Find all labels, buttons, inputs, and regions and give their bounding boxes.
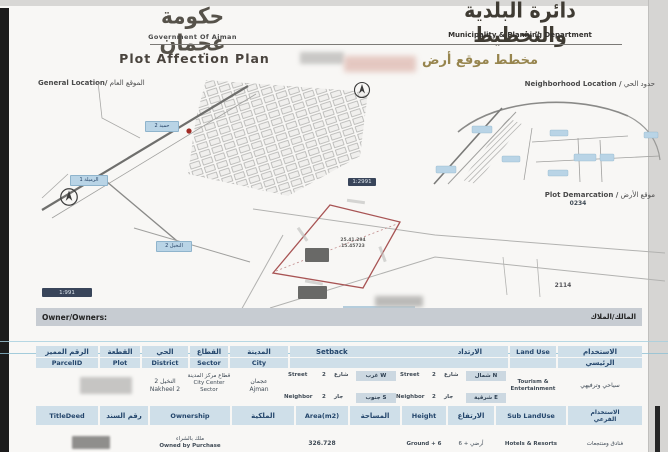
header-cell-titledeed: TitleDeed [36,406,98,425]
city-value: عجمانAjman [232,378,286,394]
header-cell-sub-landuse: Sub LandUse [496,406,566,425]
setback-south-value: 2 [322,394,332,400]
document-title-en: Plot Affection Plan [112,51,277,66]
sector-value: قطاع مركز المدينةCity Center Sector [186,373,232,394]
setback-south-type-en: Neighbor [284,394,320,400]
area-value: 326.728 [296,440,348,447]
city-blocks-area [188,80,368,196]
municipality-dept-caption: Municipality & Planning Department [415,31,625,39]
setback-west-value: 2 [322,372,332,378]
gridline [0,341,668,342]
header-cell-city: المدينةCity [230,346,288,368]
setback-south-type-ar: جار [334,394,354,400]
header-cell-sector: القطاعSector [190,346,228,368]
setback-north-direction: شمال N [466,371,506,381]
setback-south-direction: جنوب S [356,393,396,403]
scan-edge-left-black [0,8,9,452]
neighborhood-location-label: Neighborhood Location / حدود الحي [430,80,655,88]
header-cell-setback: Setbackالارتداد [290,346,508,368]
compass-icon [352,80,372,100]
map-chip-general-c: النخيل 2 [156,241,192,252]
district-value: النخيل 2Nakheel 2 [140,378,190,394]
landuse-value-en: Tourism & Entertainment [505,379,561,393]
scale-chip-neighborhood: 1:2991 [348,178,376,186]
setback-east-direction: شرقية E [466,393,506,403]
scale-chip-general: 1:991 [42,288,92,297]
header-cell-sub-landuse-ar: الاستخدامالفرعي [568,406,642,425]
header-cell-landuse-en: Land Use [510,346,556,368]
setback-east-value: 2 [432,394,442,400]
parcel-id-redacted [80,377,132,394]
setback-north-value: 2 [432,372,442,378]
header-cell-parcel: الرقم المميزParcelID [36,346,98,368]
neighborhood-location-label-en: Neighborhood Location / [525,80,622,88]
header-divider [150,44,622,45]
header-cell-height-ar: الارتفاع [448,406,494,425]
header-cell-area-ar: المساحة [350,406,400,425]
header-cell-district: الحيDistrict [142,346,188,368]
neighborhood-location-label-ar: حدود الحي [624,80,655,88]
height-value-en: Ground + 6 [402,441,446,447]
plot-affection-plan-document: حكومة عجمان Government Of Ajman دائرة ال… [0,0,668,452]
ajman-government-logo: حكومة عجمان [140,2,245,56]
setback-north-type-ar: شارع [444,372,464,378]
setback-east-type-ar: جار [444,394,464,400]
plot-coordinates-line1: 25.41.294 [340,237,365,243]
municipality-dept-logo: دائرة البلدية والتخطيط [415,0,625,48]
header-cell-area: Area(m2) [296,406,348,425]
owner-bar: Owner/Owners: المالك/الملاك [36,308,642,326]
redaction-blur [375,296,423,307]
map-chips-blurred [436,126,658,176]
header-cell-ownership: Ownership [150,406,230,425]
header-cell-landuse-main-ar: الاستخدامالرئيسي [558,346,642,368]
plot-coordinates-line2: 15.45723 [341,243,365,249]
owner-label-ar: المالك/الملاك [590,313,636,321]
redaction-blur [300,52,344,64]
redaction-blur [344,56,416,72]
landuse-value-ar: سياحي وترفيهي [568,382,632,389]
scan-mark-bottom-right [655,406,660,452]
sub-landuse-value-en: Hotels & Resorts [496,441,566,447]
titledeed-redacted [72,436,110,449]
setback-west-type-en: Street [288,372,318,378]
compass-icon [58,186,80,208]
sub-landuse-value-ar: فنادق ومنتجعات [568,441,642,447]
setback-east-type-en: Neighbor [396,394,432,400]
map-chip-general-b: الرميلة 1 [70,175,108,186]
height-value-ar: أرضي + 6 [448,441,494,447]
header-cell-height: Height [402,406,446,425]
document-title-ar: مخطط موقع أرض [415,53,545,68]
setback-north-type-en: Street [400,372,430,378]
header-cell-deed-number: رقم السند [100,406,148,425]
ajman-government-caption: Government Of Ajman [140,33,245,41]
redaction-box [298,286,327,299]
map-plot-demarcation: 25.41.294 15.45723 2114 [235,195,665,312]
ownership-value: ملك بالشراءOwned by Purchase [150,436,230,450]
neighbor-plot-number: 2114 [555,282,572,289]
setback-west-direction: غرب W [356,371,396,381]
owner-label-en: Owner/Owners: [42,313,107,322]
map-chip-general-a: حميد 2 [145,121,179,132]
plot-marker-dot [186,128,191,133]
header-cell-ownership-ar: الملكية [232,406,294,425]
header-cell-plot: القطعةPlot [100,346,140,368]
setback-west-type-ar: شارع [334,372,354,378]
redaction-box [305,248,329,262]
map-neighborhood-location [428,92,663,187]
